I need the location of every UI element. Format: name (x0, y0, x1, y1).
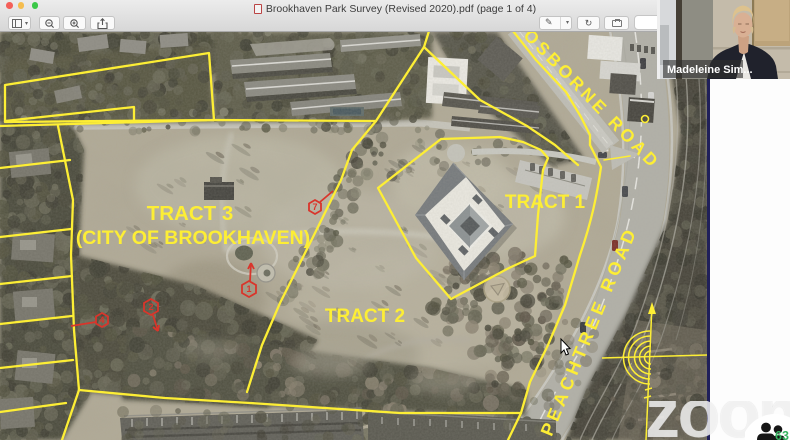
svg-text:63: 63 (775, 429, 789, 440)
svg-text:1: 1 (246, 284, 251, 294)
svg-text:4: 4 (99, 315, 104, 325)
svg-text:(CITY OF BROOKHAVEN): (CITY OF BROOKHAVEN) (76, 227, 310, 249)
svg-text:TRACT 1: TRACT 1 (505, 192, 586, 213)
svg-text:2: 2 (148, 302, 153, 312)
svg-text:TRACT 3: TRACT 3 (147, 202, 234, 225)
svg-text:TRACT 2: TRACT 2 (325, 306, 405, 327)
svg-text:Madeleine Sim...: Madeleine Sim... (667, 64, 753, 76)
svg-text:7: 7 (312, 202, 317, 212)
